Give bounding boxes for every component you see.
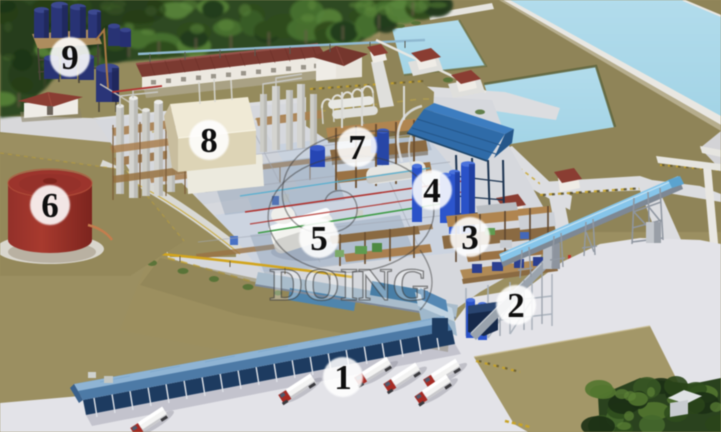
svg-text:8: 8 — [200, 121, 218, 160]
svg-text:9: 9 — [61, 38, 79, 77]
svg-text:4: 4 — [423, 171, 441, 210]
svg-text:1: 1 — [334, 358, 352, 397]
svg-text:6: 6 — [41, 186, 59, 225]
svg-text:DOING: DOING — [269, 259, 428, 311]
svg-text:7: 7 — [348, 128, 366, 167]
svg-text:3: 3 — [461, 218, 479, 257]
svg-text:5: 5 — [310, 219, 328, 258]
svg-text:2: 2 — [507, 286, 525, 325]
